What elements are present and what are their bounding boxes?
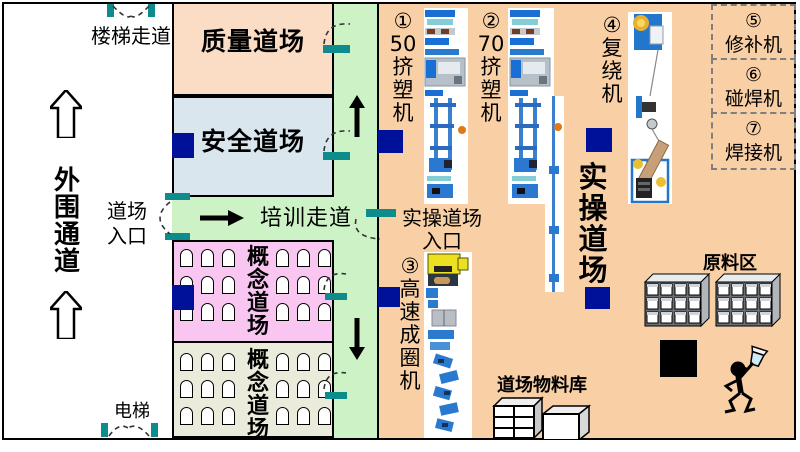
concept-upper-door [325,293,347,300]
machine-4-label: ④ 复 绕 机 [597,14,627,106]
concept-upper-door-arc [322,268,348,294]
pillar-icon [378,130,403,153]
machine-1-label: ① 50 挤 塑 机 [388,10,418,125]
equipment-welder-label: ⑦ 焊接机 [713,114,794,165]
seat-arch-icon [297,407,310,425]
practical-entrance-door-arc [350,217,382,243]
seat-arch-icon [276,276,289,294]
machine-3-label: ③ 高 速 成 圈 机 [395,255,425,393]
concept-dojo-upper-label: 概 念 道 场 [243,246,273,338]
right-arrow-icon [200,210,244,226]
material-store-label: 道场物料库 [490,376,594,397]
up-arrow-icon [50,90,82,138]
seat-arch-icon [222,303,235,321]
elevator-door-arc [107,420,151,438]
up-arrow-icon [50,291,82,339]
concept-lower-door-arc [322,367,348,393]
quality-dojo-door [323,45,350,53]
seat-arch-icon [201,353,214,371]
elevator-door-right [151,423,158,437]
equipment-box-welder: ⑦ 焊接机 [711,112,796,170]
machine-photo-extruder-70-conveyor [545,96,564,292]
dojo-entrance-door-upper [165,193,190,200]
machine-2-label: ② 70 挤 塑 机 [476,10,506,125]
black-block [660,340,697,377]
seat-arch-icon [276,353,289,371]
seat-arch-icon [222,353,235,371]
machine-photo-coiler [424,252,472,438]
safety-dojo-label: 安全道场 [172,128,334,157]
seat-arch-grid [180,353,235,434]
outer-corridor-label: 外 围 通 道 [50,168,84,276]
seat-arch-icon [276,380,289,398]
solid-down-arrow-icon [349,318,365,360]
equipment-box-repair: ⑤ 修补机 [711,4,796,60]
seat-arch-icon [222,407,235,425]
seat-arch-icon [222,249,235,267]
pillar-icon [172,133,194,158]
practical-dojo-label: 实 操 道 场 [575,162,611,286]
raw-material-shelf-icon [643,270,713,334]
seat-arch-icon [276,249,289,267]
dojo-entrance-door-arc [148,200,172,236]
seat-arch-icon [297,249,310,267]
seat-arch-icon [180,249,193,267]
equipment-repair-label: ⑤ 修补机 [713,6,794,57]
equipment-spot-welder-label: ⑥ 碰焊机 [713,60,794,111]
seat-arch-icon [276,303,289,321]
concept-dojo-lower-label: 概 念 道 场 [243,349,273,441]
quality-door-arc [321,18,353,46]
stair-door-arc [112,3,150,21]
seat-arch-icon [318,249,331,267]
material-store-shelf-icon [492,396,544,440]
seat-arch-icon [297,380,310,398]
seat-arch-icon [201,303,214,321]
raw-material-shelf-icon [714,270,784,334]
machine-photo-extruder-50 [424,8,468,204]
seat-arch-icon [222,276,235,294]
concept-lower-door [325,392,347,399]
pillar-icon [172,285,194,310]
seat-arch-grid [276,353,331,434]
material-store-box-icon [541,404,591,440]
seat-arch-icon [180,407,193,425]
worker-figure-icon [712,345,772,417]
seat-arch-icon [297,276,310,294]
safety-dojo-door [323,152,350,160]
training-corridor-label: 培训走道 [252,206,360,231]
seat-arch-icon [318,303,331,321]
machine-photo-rewinder [628,12,672,204]
seat-arch-icon [318,407,331,425]
factory-dojo-layout-diagram: 楼梯走道 外 围 通 道 道场 入口 电梯 质量道场 安全道场 培训走道 概 念… [0,0,800,452]
seat-arch-icon [201,380,214,398]
seat-arch-icon [276,407,289,425]
seat-arch-icon [222,380,235,398]
seat-arch-icon [201,407,214,425]
stair-walkway-label: 楼梯走道 [88,25,174,48]
seat-arch-icon [180,380,193,398]
practical-entrance-label: 实操道场 入口 [394,207,490,253]
seat-arch-icon [180,353,193,371]
seat-arch-icon [201,249,214,267]
seat-arch-icon [297,303,310,321]
equipment-box-spot-welder: ⑥ 碰焊机 [711,58,796,114]
safety-door-arc [321,125,353,153]
seat-arch-icon [201,276,214,294]
pillar-icon [585,287,610,309]
pillar-icon [586,128,612,152]
seat-arch-icon [297,353,310,371]
practical-entrance-door [366,209,396,217]
quality-dojo-label: 质量道场 [172,28,334,57]
